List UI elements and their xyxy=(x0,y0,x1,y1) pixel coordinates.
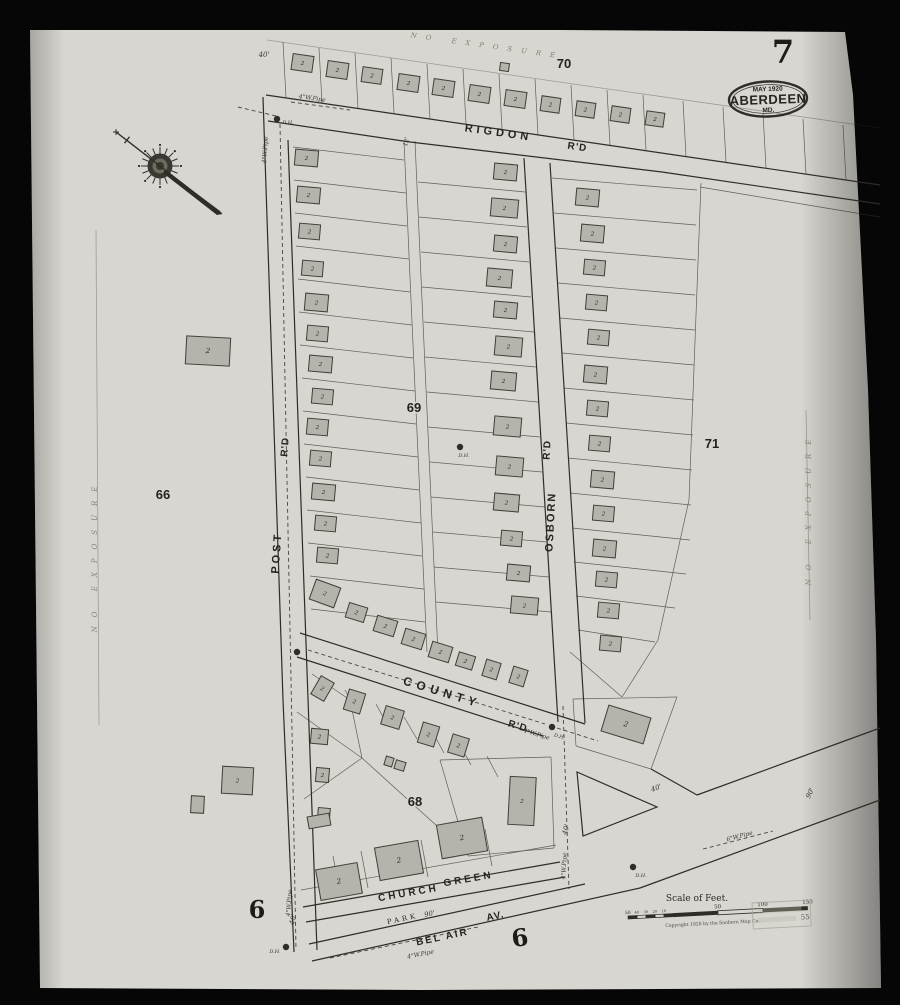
building-dwelling: 2 xyxy=(309,450,331,467)
building-dwelling: 2 xyxy=(310,728,328,744)
building-dwelling: 2 xyxy=(493,416,522,437)
building-dwelling: 2 xyxy=(316,547,338,564)
hydrant-dot xyxy=(457,444,463,450)
building-storeys-label: 2 xyxy=(519,799,524,805)
building-storeys-label: 2 xyxy=(205,347,211,355)
building-dwelling: 2 xyxy=(490,198,518,218)
building-dwelling: 2 xyxy=(645,111,665,127)
scale-tick-label: 20 xyxy=(652,909,657,913)
building-dwelling: 2 xyxy=(490,371,516,391)
sheet-reference-number: 6 xyxy=(249,895,266,924)
building-dwelling: 2 xyxy=(500,530,522,547)
hydrant-dot xyxy=(549,724,555,730)
building-dwelling: 2 xyxy=(583,259,605,276)
building-dwelling: 2 xyxy=(575,101,596,118)
building-dwelling: 2 xyxy=(298,223,320,240)
building-dwelling: 2 xyxy=(374,840,423,880)
building-dwelling: 2 xyxy=(580,224,604,243)
building-dwelling: 2 xyxy=(590,470,614,489)
building-dwelling: 2 xyxy=(592,505,614,522)
building-dwelling: 2 xyxy=(493,493,519,512)
building-dwelling: 2 xyxy=(506,564,530,582)
building-dwelling: 2 xyxy=(397,74,420,93)
building-dwelling: 2 xyxy=(185,336,230,366)
building-dwelling: 2 xyxy=(306,418,328,436)
map-annotation: 40' xyxy=(258,51,270,59)
building-dwelling: 2 xyxy=(291,54,314,73)
building-dwelling: 2 xyxy=(592,539,616,558)
building-dwelling: 2 xyxy=(493,235,517,253)
hydrant-dot xyxy=(294,649,300,655)
building-dwelling: 2 xyxy=(495,456,524,477)
building-dwelling: 2 xyxy=(432,79,455,98)
scale-title: Scale of Feet. xyxy=(666,894,728,904)
building-dwelling: 2 xyxy=(436,817,487,858)
building-dwelling: 2 xyxy=(588,435,610,452)
building-dwelling: 2 xyxy=(493,301,517,319)
scale-tick-label: 50 xyxy=(714,904,722,910)
building-dwelling: 2 xyxy=(504,90,527,109)
building-dwelling: 2 xyxy=(311,388,333,405)
block-number: 68 xyxy=(408,794,422,809)
sheet-reference-number: 7 xyxy=(772,33,794,71)
building-dwelling: 2 xyxy=(510,596,538,615)
map-annotation: D.H. xyxy=(634,873,647,879)
building-dwelling: 2 xyxy=(314,515,336,532)
stamp-text: 55 xyxy=(801,913,810,921)
building-dwelling: 2 xyxy=(308,355,332,373)
building-dwelling: 2 xyxy=(316,863,363,901)
scale-tick-label: 40 xyxy=(634,910,639,914)
building-dwelling: 2 xyxy=(486,268,512,288)
building-dwelling: 2 xyxy=(575,188,599,207)
building-dwelling: 2 xyxy=(493,163,517,181)
building-dwelling: 2 xyxy=(315,767,329,782)
building-dwelling: 2 xyxy=(221,766,253,795)
building-storeys-label: 2 xyxy=(235,778,240,784)
building-dwelling xyxy=(499,62,509,71)
badge-city: ABERDEEN xyxy=(729,91,806,109)
building-dwelling: 2 xyxy=(494,336,523,357)
no-exposure-label: NO EXPOSURE xyxy=(805,431,813,587)
scanned-map-page: 2222222222222222222222222222222222222222… xyxy=(0,0,900,1005)
building-dwelling: 2 xyxy=(326,61,349,80)
building-dwelling: 2 xyxy=(306,325,328,342)
scale-tick-label: 50 xyxy=(625,910,631,916)
block-number: 71 xyxy=(705,436,719,451)
map-annotation: D.H. xyxy=(457,453,470,459)
no-exposure-label: NO EXPOSURE xyxy=(91,478,99,634)
badge-state: MD. xyxy=(762,107,774,114)
map-annotation: D.H. xyxy=(268,949,281,955)
block-number: 69 xyxy=(407,400,421,415)
building-dwelling xyxy=(191,796,205,814)
building-dwelling: 2 xyxy=(468,85,491,104)
building-dwelling: 2 xyxy=(301,260,323,277)
building-dwelling: 2 xyxy=(599,635,621,652)
hydrant-dot xyxy=(630,864,636,870)
building-dwelling: 2 xyxy=(294,149,318,167)
building-dwelling: 2 xyxy=(587,329,609,346)
map-annotation: D.H. xyxy=(281,120,294,126)
building-dwelling: 2 xyxy=(610,106,631,123)
scale-tick-label: 30 xyxy=(643,910,648,914)
street-label: R'D xyxy=(541,440,553,460)
building-dwelling: 2 xyxy=(595,571,617,588)
building-dwelling: 2 xyxy=(586,400,608,417)
building-dwelling: 2 xyxy=(585,294,607,311)
map-annotation: 4"W.Pipe xyxy=(560,852,568,881)
street-label: R'D xyxy=(279,437,291,458)
building-dwelling: 2 xyxy=(296,186,320,204)
building-dwelling: 2 xyxy=(304,293,328,312)
sanborn-map-svg: 2222222222222222222222222222222222222222… xyxy=(0,0,900,1005)
scale-tick-label: 10 xyxy=(661,909,666,913)
building-dwelling: 2 xyxy=(311,483,335,501)
building-dwelling: 2 xyxy=(540,96,561,113)
hydrant-dot xyxy=(274,116,280,122)
building-dwelling: 2 xyxy=(508,776,536,825)
block-number: 66 xyxy=(156,487,170,502)
building-dwelling: 2 xyxy=(597,602,619,619)
building-dwelling: 2 xyxy=(583,365,607,384)
hydrant-dot xyxy=(283,944,289,950)
building-dwelling: 2 xyxy=(361,67,383,85)
